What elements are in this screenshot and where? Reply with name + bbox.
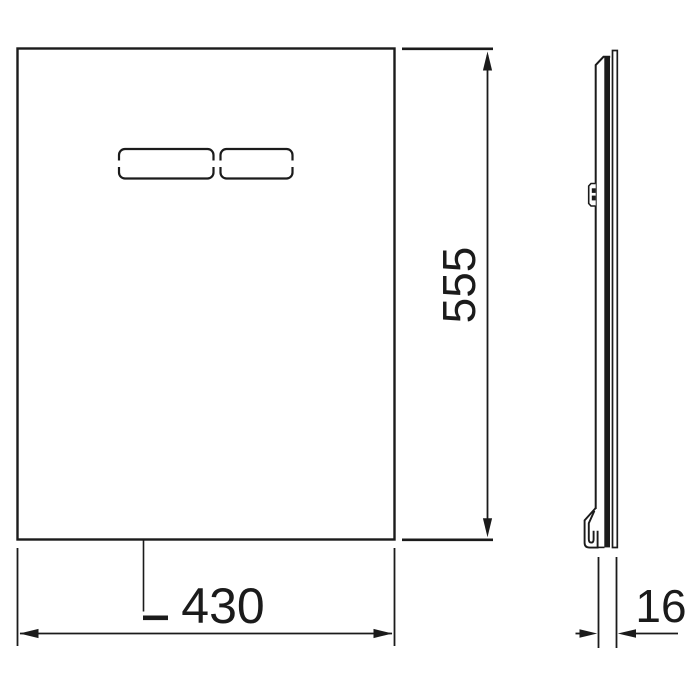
arrow-right-icon xyxy=(580,629,598,638)
clip-notch-bottom xyxy=(592,196,596,201)
depth-dimension-value: 16 xyxy=(611,581,700,631)
glass-section xyxy=(604,57,610,548)
drawing-canvas: 555 430 16 xyxy=(0,0,700,700)
arrow-right-icon xyxy=(374,629,393,638)
arrow-left-icon xyxy=(20,629,39,638)
panel-outline xyxy=(18,49,395,540)
rear-rail xyxy=(613,51,618,548)
arrow-down-icon xyxy=(483,518,492,537)
clip-notch-top xyxy=(592,188,596,193)
dimension-drawing xyxy=(0,0,700,700)
fixing-clip xyxy=(589,184,596,207)
height-dimension-value: 555 xyxy=(434,205,484,365)
side-profile-view xyxy=(585,51,618,548)
width-dimension-value: 430 xyxy=(143,581,303,631)
arrow-up-icon xyxy=(483,52,492,71)
front-view xyxy=(18,49,395,621)
